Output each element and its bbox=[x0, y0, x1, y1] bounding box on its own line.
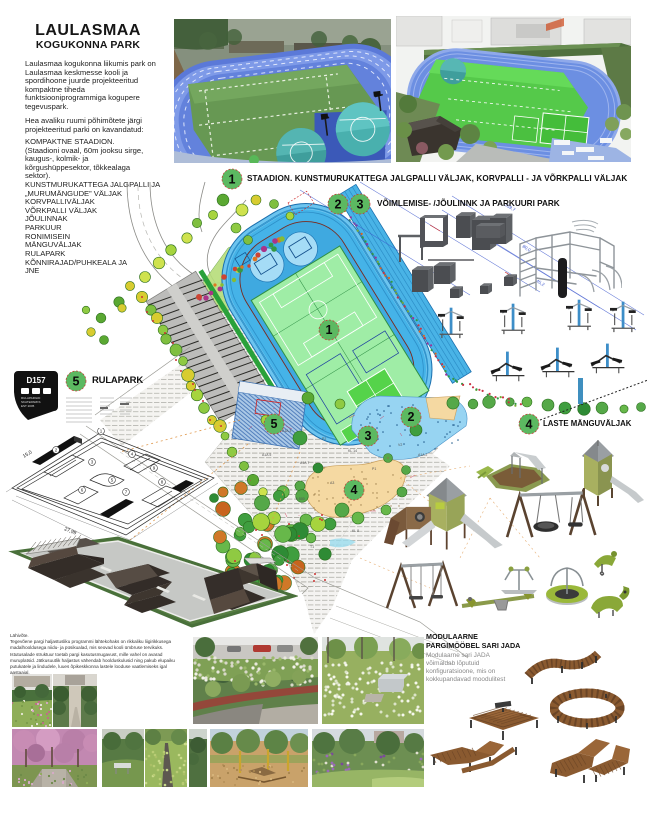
svg-text:T1: T1 bbox=[310, 545, 314, 549]
svg-text:A1A 7: A1A 7 bbox=[300, 461, 309, 465]
svg-text:A1A 3: A1A 3 bbox=[282, 429, 291, 433]
svg-text:2: 2 bbox=[335, 198, 342, 212]
svg-text:5: 5 bbox=[73, 375, 80, 389]
svg-text:A1A 5: A1A 5 bbox=[262, 453, 271, 457]
svg-text:2: 2 bbox=[408, 410, 415, 424]
svg-text:EST 2005: EST 2005 bbox=[21, 404, 35, 408]
svg-text:3: 3 bbox=[357, 198, 364, 212]
svg-text:15,0: 15,0 bbox=[22, 449, 34, 459]
svg-text:1:500: 1:500 bbox=[296, 497, 305, 501]
svg-text:1: 1 bbox=[326, 323, 333, 337]
svg-text:1: 1 bbox=[229, 173, 236, 187]
svg-text:D157: D157 bbox=[26, 376, 46, 385]
svg-text:A3: A3 bbox=[330, 481, 334, 485]
svg-text:5: 5 bbox=[271, 417, 278, 431]
svg-text:4: 4 bbox=[526, 418, 533, 432]
svg-text:P2: P2 bbox=[322, 437, 326, 441]
